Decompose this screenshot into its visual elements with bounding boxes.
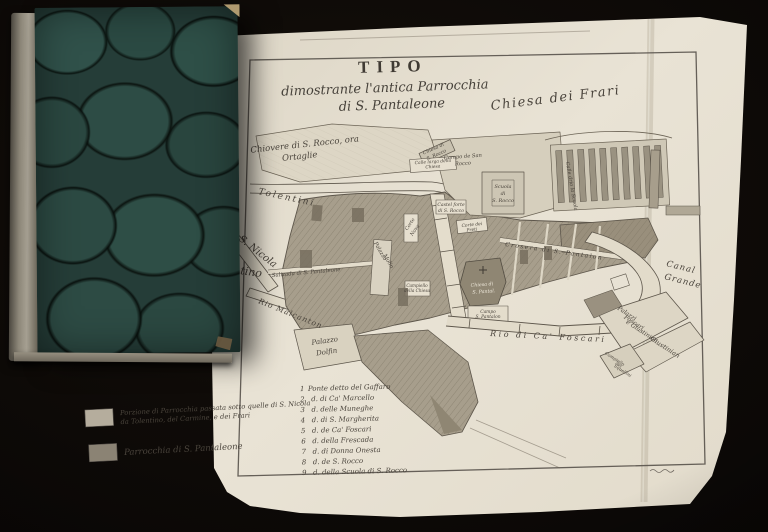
label-scuola-2: di <box>501 191 506 197</box>
bridge-label: d. di Ca' Marcello <box>311 394 374 404</box>
label-campiello-chiesa-2: della Chiesa <box>404 288 431 293</box>
photo-scene: TIPO dimostrante l'antica Parrocchia di … <box>0 0 768 532</box>
bridge-num: 1 <box>300 385 305 393</box>
label-castel-2: di S. Rocco <box>438 208 464 214</box>
bridge-num: 4 <box>300 416 306 424</box>
bridge-num: 5 <box>301 427 306 435</box>
ne-strip-2 <box>666 206 700 215</box>
legend-swatch-1 <box>85 409 114 427</box>
map-title: TIPO <box>358 56 428 77</box>
label-scuola-3: S. Rocco <box>492 198 514 204</box>
label-campo-s-rocco-2: Rocco <box>454 160 471 167</box>
bridge-label: d. de Ca' Foscari <box>312 425 372 435</box>
ne-strip <box>649 150 660 208</box>
label-campo-pant-2: S. Pantalon <box>475 315 500 320</box>
bridge-label: d. delle Muneghe <box>311 404 373 414</box>
bridge-num: 8 <box>302 458 307 466</box>
bridge-label: d. de S. Rocco <box>313 457 364 466</box>
bridge-num: 3 <box>300 406 305 414</box>
book-cover-board <box>34 6 240 354</box>
bridge-label: d. della Frescada <box>312 436 373 446</box>
bridge-num: 9 <box>302 469 307 477</box>
legend-swatch-2 <box>89 443 118 461</box>
bridge-num: 2 <box>299 395 305 403</box>
bridge-num: 7 <box>301 448 306 456</box>
book-page-edges <box>14 352 232 363</box>
label-scuola-1: Scuola <box>494 184 511 190</box>
label-castel-1: Castel forte <box>437 202 465 208</box>
bridge-num: 6 <box>301 437 306 445</box>
book <box>0 0 260 380</box>
